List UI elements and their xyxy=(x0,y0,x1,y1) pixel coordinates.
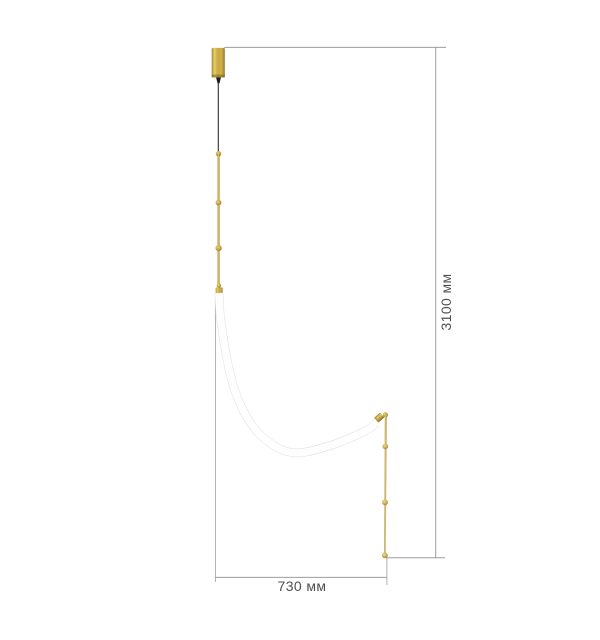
svg-text:730 мм: 730 мм xyxy=(278,578,327,594)
svg-text:3100 мм: 3100 мм xyxy=(438,273,454,330)
